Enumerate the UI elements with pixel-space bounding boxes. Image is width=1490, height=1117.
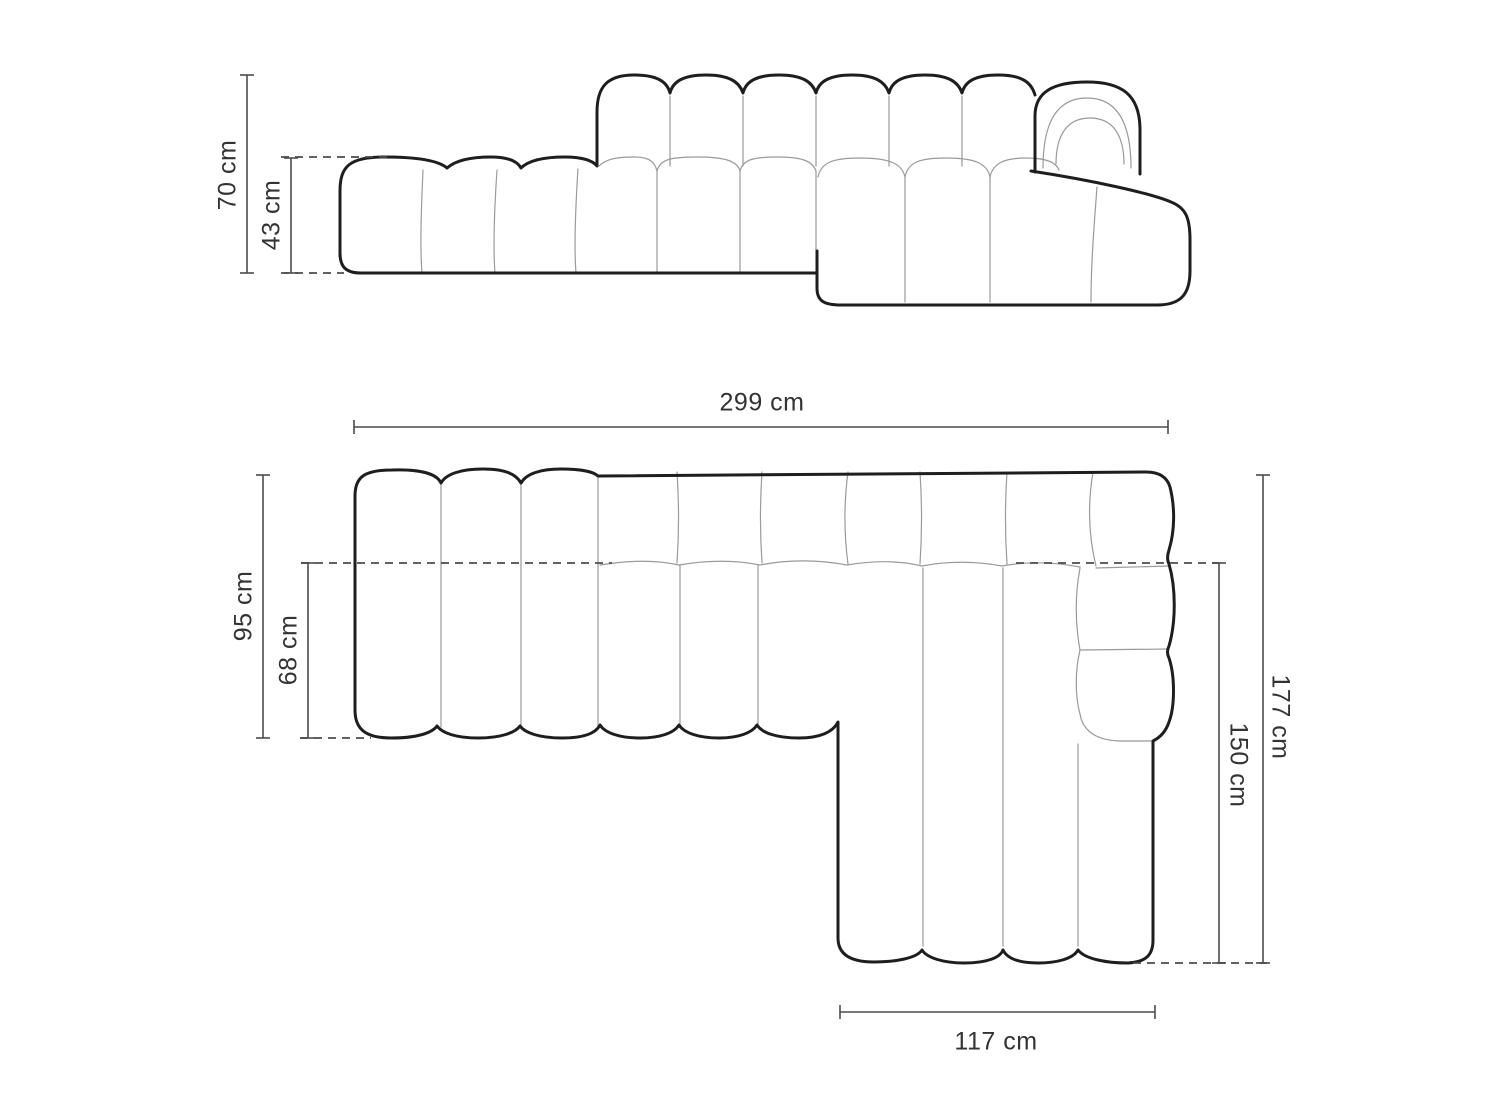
top-view-outline <box>355 469 1174 963</box>
front-base-line-path <box>340 253 816 273</box>
dimension-lines <box>240 75 1270 1019</box>
front-silhouette-path <box>340 75 1035 256</box>
front-view-seam-lines <box>421 96 1131 302</box>
top-view-seam-lines <box>441 472 1170 946</box>
top-view <box>355 469 1174 963</box>
chaise-width-label: 117 cm <box>954 1028 1037 1057</box>
top-silhouette-path <box>355 469 1174 963</box>
extension-dashed-lines <box>281 157 1269 963</box>
seat-depth-label: 68 cm <box>275 615 304 686</box>
front-view-outline <box>340 75 1190 305</box>
front-view <box>340 75 1190 305</box>
right-total-depth-label: 177 cm <box>1266 675 1295 760</box>
sofa-dimension-diagram: 70 cm 43 cm 299 cm 95 cm 68 cm 177 cm 15… <box>0 0 1490 1117</box>
front-chaise-base-path <box>817 251 1158 305</box>
front-end-cushion-path <box>1031 171 1190 305</box>
total-height-label: 70 cm <box>214 140 243 211</box>
left-depth-label: 95 cm <box>230 571 259 642</box>
seat-height-label: 43 cm <box>258 180 287 251</box>
chaise-depth-label: 150 cm <box>1224 723 1253 808</box>
total-width-label: 299 cm <box>720 389 805 418</box>
